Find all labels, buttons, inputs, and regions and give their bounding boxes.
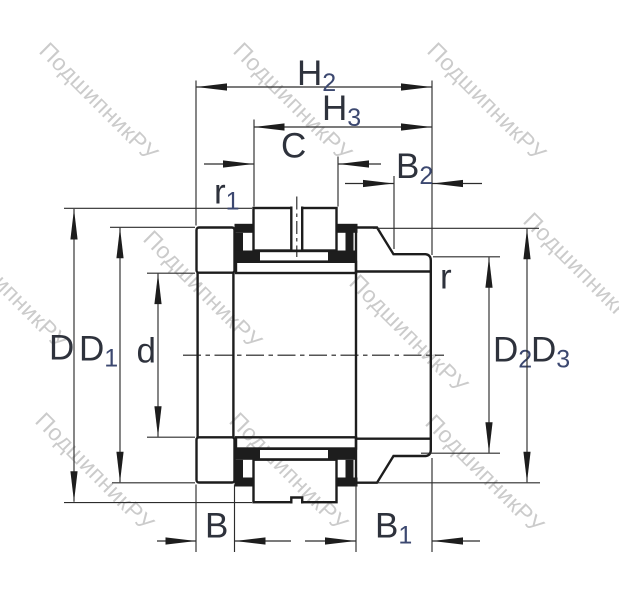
arrowhead [325, 537, 356, 544]
dimension-label-b: B [205, 507, 228, 546]
dimension-d2: D2 [485, 257, 532, 453]
arrowhead [70, 209, 77, 240]
cage-stem-right [346, 460, 354, 479]
dimension-label-r1: r1 [214, 173, 240, 216]
watermark-text: ПодшипникРУ [30, 407, 159, 536]
dimension-d-bore: d [137, 274, 162, 437]
cage-stem-left [235, 233, 244, 251]
dimension-label-b1: B1 [375, 507, 412, 550]
arrowhead [523, 452, 530, 483]
arrowhead [485, 257, 492, 288]
watermark-text: ПодшипникРУ [224, 407, 353, 536]
arrowhead [223, 160, 254, 167]
arrowhead [235, 537, 266, 544]
dimension-label-d3: D3 [531, 331, 570, 374]
watermark-text: ПодшипникРУ [344, 269, 473, 398]
watermark-text: ПодшипникРУ [422, 37, 551, 166]
arrowhead [197, 83, 228, 90]
arrowhead [154, 274, 161, 305]
arrowhead [401, 123, 432, 130]
left-washer-top-section [197, 228, 235, 273]
arrowhead [485, 422, 492, 453]
cage-window [260, 450, 328, 458]
dimension-b2: B2 [345, 147, 482, 190]
cage-stem-right [346, 231, 354, 251]
shaft-washer-top-section [254, 206, 337, 251]
cage-stem-left [235, 460, 244, 478]
dimension-label-d-bore: d [137, 332, 156, 371]
bearing-section [183, 197, 444, 505]
cage-cap-left [235, 478, 255, 487]
dimension-label-h3: H3 [322, 89, 361, 132]
arrowhead [433, 537, 464, 544]
cage-cap-left [235, 224, 255, 233]
arrowhead [433, 180, 464, 187]
arrowhead [70, 471, 77, 502]
dimension-b: B [157, 507, 291, 546]
watermark-text: ПодшипникРУ [518, 207, 619, 336]
bearing-drawing-canvas: ПодшипникРУ ПодшипникРУ ПодшипникРУ Подш… [0, 0, 619, 601]
dimension-label-d-outer: D [49, 329, 74, 368]
cage-window [260, 252, 328, 260]
outer-sleeve-flange-top-section [356, 228, 431, 272]
outer-sleeve-flange-bottom-section [356, 439, 431, 483]
dimension-label-d2: D2 [493, 331, 532, 374]
arrowhead [166, 537, 197, 544]
dimension-label-d1: D1 [79, 330, 118, 373]
bearing-dimension-drawing: ПодшипникРУ ПодшипникРУ ПодшипникРУ Подш… [0, 0, 619, 601]
dimension-label-b2: B2 [396, 147, 433, 190]
arrowhead [254, 123, 285, 130]
arrowhead [363, 180, 394, 187]
needle-roller-row-top [236, 262, 356, 273]
left-washer-bottom-section [197, 437, 235, 482]
dimension-h2: H2 [197, 54, 432, 97]
dimension-label-c: C [281, 127, 306, 166]
arrowhead [154, 406, 161, 437]
arrowhead [401, 83, 432, 90]
watermark-text: ПодшипникРУ [420, 409, 549, 538]
arrowhead [116, 228, 123, 258]
watermark-text: ПодшипникРУ [34, 37, 163, 166]
dimension-label-r: r [440, 258, 452, 297]
